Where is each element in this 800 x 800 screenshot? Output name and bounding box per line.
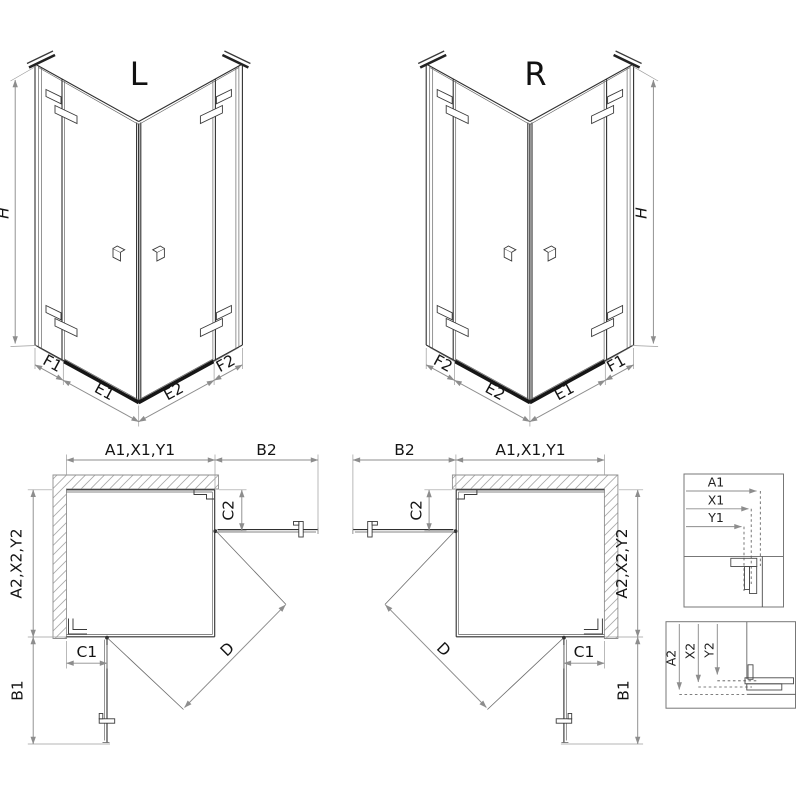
plan-right-b1-label: B1 [615, 680, 633, 701]
plan-right-b2-label: B2 [394, 441, 415, 459]
iso-right-title-label: R [524, 55, 546, 93]
background [0, 0, 800, 800]
plan-left-depth-label: A2,X2,Y2 [8, 528, 26, 598]
x1-reference-label: X1 [708, 492, 725, 507]
y2-reference-label: Y2 [702, 642, 717, 659]
y1-reference-label: Y1 [707, 510, 724, 525]
x2-reference-label: X2 [683, 643, 698, 660]
plan-left-b1-label: B1 [9, 680, 27, 701]
a2-reference-label: A2 [664, 650, 679, 667]
iso-right-height-label: H [633, 207, 651, 219]
plan-right-width-label: A1,X1,Y1 [495, 441, 565, 459]
a1-reference-label: A1 [708, 475, 725, 490]
plan-left-width-label: A1,X1,Y1 [105, 441, 175, 459]
plan-left-c2-label: C2 [220, 500, 238, 521]
plan-right-c1-label: C1 [574, 643, 595, 661]
iso-left-height-label: H [0, 207, 13, 219]
plan-right-c2-label: C2 [408, 500, 426, 521]
plan-left-c1-label: C1 [76, 643, 97, 661]
technical-drawing-canvas: L H F1 E1 E2 F2 R H F2 E2 E1 F1 A1,X1,Y1… [0, 0, 800, 800]
plan-right-depth-label: A2,X2,Y2 [613, 528, 631, 598]
drawing-page: L H F1 E1 E2 F2 R H F2 E2 E1 F1 A1,X1,Y1… [0, 0, 800, 800]
iso-left-title-label: L [130, 55, 148, 93]
plan-left-b2-label: B2 [256, 441, 277, 459]
